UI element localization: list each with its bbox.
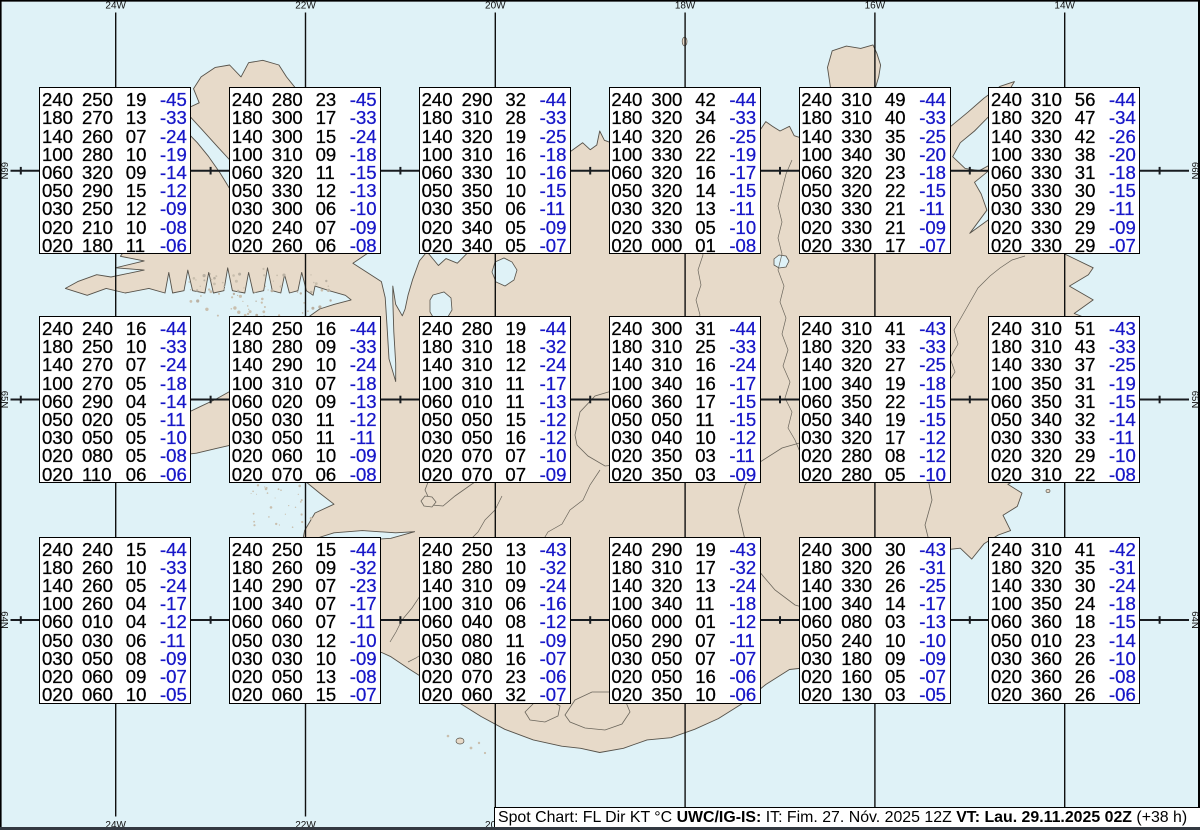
svg-text:18W: 18W [675, 1, 696, 12]
svg-text:20W: 20W [485, 1, 506, 12]
svg-text:24W: 24W [105, 1, 126, 12]
svg-text:14W: 14W [1054, 1, 1075, 12]
svg-text:22W: 22W [295, 1, 316, 12]
svg-text:16W: 16W [865, 1, 886, 12]
